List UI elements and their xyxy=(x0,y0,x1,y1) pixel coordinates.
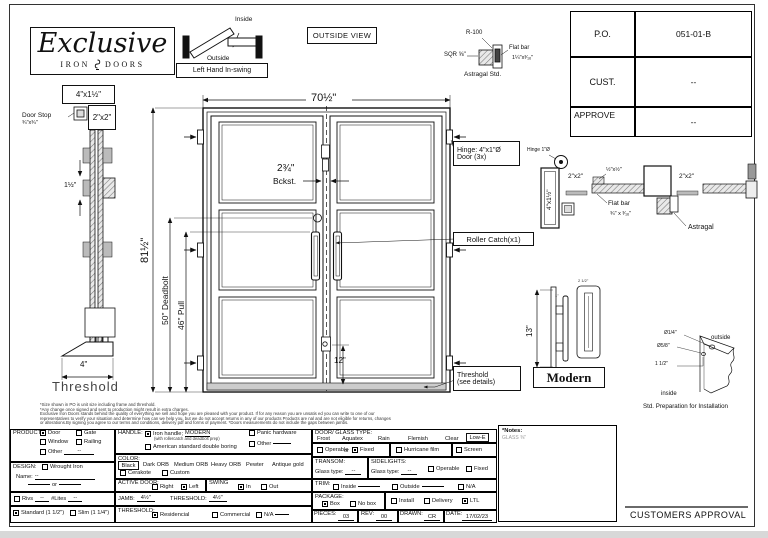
drawn-label: DRAWN: xyxy=(400,511,423,517)
checkbox-ltl: LTL xyxy=(462,498,479,504)
checkbox-cerakote: Cerakote xyxy=(120,470,151,476)
checkbox-custom-color: Custom xyxy=(162,470,190,476)
customers-approval-label: CUSTOMERS APPROVAL xyxy=(630,511,746,521)
checkbox-other-product: Other-- xyxy=(40,448,94,455)
door-stop-size: ¾"x¾" xyxy=(22,120,38,126)
checkbox-other-handle: Other xyxy=(249,441,291,447)
backset-dim: 2¾" xyxy=(277,163,294,174)
po-label: P.O. xyxy=(570,11,635,57)
threshold-width-dim: 4" xyxy=(80,361,87,370)
glass-frost: Frost xyxy=(317,436,330,442)
astragal-std-caption: Astragal Std. xyxy=(464,71,501,78)
glass-or-text: or xyxy=(344,448,349,454)
hinge-gap-dim: 1½" xyxy=(64,182,76,190)
date-value: 17/02/23 xyxy=(462,514,492,521)
checkbox-sidelight-operable: Operable xyxy=(428,466,459,472)
outside-view-label: OUTSIDE VIEW xyxy=(307,27,377,44)
threshold-row-label: THRESHOLD: xyxy=(118,508,155,514)
pull-dim: 46" Pull xyxy=(177,301,186,330)
threshold-value-field: THRESHOLD:4½" xyxy=(170,495,227,502)
checkbox-railing: Railing xyxy=(76,439,101,445)
design-label: DESIGN: xyxy=(13,464,36,470)
flatbar-label: Flat bar xyxy=(509,45,529,52)
head-astragal-label: Astragal xyxy=(688,224,714,232)
hinge-note: Hinge: 4"x1"Ø Door (3x) xyxy=(453,141,520,166)
product-label: PRODUCT: xyxy=(13,430,42,436)
roller-catch-note: Roller Catch(x1) xyxy=(453,232,534,246)
backset-label: Bckst. xyxy=(273,177,296,186)
logo-title: Exclusive xyxy=(38,30,168,57)
color-pewter: Pewter xyxy=(246,462,264,468)
approve-value: -- xyxy=(635,107,752,137)
prep-outside-label: outside xyxy=(711,335,730,342)
checkbox-wrought-iron: Wrought Iron xyxy=(42,464,83,470)
head-flatbar-size: ¾" x ³⁄₁₆" xyxy=(610,211,631,217)
checkbox-nobox: No box xyxy=(350,501,376,507)
handle-dim-width: 2 1/2" xyxy=(578,279,588,283)
hinge-note-line1: Hinge: 4"x1"Ø xyxy=(457,147,501,154)
glass-aquatex: Aquatex xyxy=(342,436,363,442)
checkbox-gate: Gate xyxy=(76,430,96,436)
sidelights-glass-field: Glass type:-- xyxy=(371,468,417,475)
checkbox-standard: Standard (1 1/2") xyxy=(13,510,64,516)
r100-label: R-100 xyxy=(466,30,482,37)
checkbox-door: Door xyxy=(40,430,60,436)
door-spec-sheet: Exclusive IRON DOORS Inside Outside Left… xyxy=(0,0,768,538)
design-or-divider: or xyxy=(28,482,81,488)
swing-label: SWING xyxy=(209,480,228,486)
checkbox-threshold-na: N/A xyxy=(256,512,289,518)
head-jamb-label: 4"x1½" xyxy=(546,189,553,210)
checkbox-trim-na: N/A xyxy=(458,484,475,490)
pieces-label: PIECES: xyxy=(314,511,336,517)
transom-glass-field: Glass type:-- xyxy=(315,468,361,475)
head-tube-left-label: 2"x2" xyxy=(568,173,583,180)
head-tube-right-label: 2"x2" xyxy=(679,173,694,180)
po-value: 051-01-B xyxy=(635,11,752,57)
prep-hole1-label: Ø1/4" xyxy=(664,331,677,337)
checkbox-in: In xyxy=(238,484,251,490)
handle-label: HANDLE: xyxy=(118,430,143,436)
corner-size-label: ½"x½" xyxy=(606,167,622,173)
package-label: PACKAGE: xyxy=(315,494,344,500)
checkbox-trim-inside: Inside xyxy=(333,484,380,490)
checkbox-fixed: Fixed xyxy=(352,447,374,453)
date-label: DATE: xyxy=(446,511,462,517)
sidelights-label: SIDELIGHTS: xyxy=(371,459,406,465)
deadbolt-dim: 50" Deadbolt xyxy=(161,276,170,325)
approve-label: APPROVE xyxy=(570,107,635,137)
logo-iron: IRON xyxy=(60,60,90,69)
color-antique-gold: Antique gold xyxy=(272,462,304,468)
flatbar-size-label: 1¼"x³⁄₁₆" xyxy=(512,55,533,61)
handle-dim-small: 1" xyxy=(555,294,559,298)
door-stop-label: Door Stop xyxy=(22,112,51,119)
jamb-size-label: 4"x1½" xyxy=(62,85,115,104)
swing-caption: Left Hand In-swing xyxy=(176,63,268,78)
jamb-value-field: JAMB:4½" xyxy=(118,495,155,502)
height-dim: 81½" xyxy=(139,238,151,263)
threshold-note: Threshold (see details) xyxy=(453,366,521,391)
color-heavy-orb: Heavy ORB xyxy=(211,462,241,468)
notes-title: *Notes: xyxy=(502,428,522,434)
rev-label: REV: xyxy=(361,511,374,517)
color-medium-orb: Medium ORB xyxy=(174,462,208,468)
checkbox-screen: Screen xyxy=(456,447,482,453)
checkbox-out: Out xyxy=(261,484,278,490)
prep-caption: Std. Preparation for Installation xyxy=(643,404,728,411)
notes-body: GLASS ⅜" xyxy=(502,436,526,442)
checkbox-american-boring: American standard double boring xyxy=(145,444,237,450)
prep-inside-label: inside xyxy=(661,391,677,398)
design-name-field: Name:-- xyxy=(16,473,95,480)
checkbox-slim: Slim (1 1/4") xyxy=(70,510,109,516)
rev-value: 00 xyxy=(376,514,392,521)
tube-size-label: 2"x2" xyxy=(88,105,116,130)
disclaimer-line5: or alterations.By signing you agree to o… xyxy=(40,421,348,426)
transom-label: TRANSOM: xyxy=(315,459,345,465)
head-flatbar-label: Flat bar xyxy=(608,200,630,207)
iron-handle-subtext: (with rollercatch and deadbolt prep) xyxy=(154,437,220,442)
swing-inside-label: Inside xyxy=(235,16,252,23)
threshold-note-line1: Threshold xyxy=(457,372,488,379)
threshold-note-line2: (see details) xyxy=(457,379,495,386)
handle-height-dim: 13" xyxy=(526,325,535,337)
checkbox-rivs: Rivs--#Lites-- xyxy=(14,495,82,502)
glass-lowe-selected: Low-E xyxy=(466,433,489,442)
logo-subtitle: IRON DOORS xyxy=(60,59,144,71)
trim-label: TRIM: xyxy=(315,481,330,487)
checkbox-window: Window xyxy=(40,439,68,445)
width-dim: 70½" xyxy=(311,92,336,104)
checkbox-right: Right xyxy=(152,484,173,490)
logo-doors: DOORS xyxy=(105,60,145,69)
checkbox-residential: Residencial xyxy=(152,512,189,518)
checkbox-install: Install xyxy=(391,498,414,504)
prep-hole2-label: Ø5/8" xyxy=(657,344,670,350)
cust-value: -- xyxy=(635,57,752,107)
glass-flemish: Flemish xyxy=(408,436,428,442)
checkbox-delivery: Delivery xyxy=(424,498,453,504)
cust-label: CUST. xyxy=(570,57,635,107)
lock-height-dim: 12" xyxy=(334,357,346,366)
glass-clear: Clear xyxy=(445,436,459,442)
prep-offset-label: 1 1/2" xyxy=(655,362,668,368)
checkbox-box: Box xyxy=(322,501,340,507)
checkbox-sidelight-fixed: Fixed xyxy=(466,466,488,472)
hinge-dia-label: Hinge 1"Ø xyxy=(527,148,550,154)
swing-outside-label: Outside xyxy=(207,55,229,62)
checkbox-left: Left xyxy=(181,484,199,490)
checkbox-hurricane: Hurricane film xyxy=(396,447,439,453)
logo-emblem-icon xyxy=(93,59,102,71)
color-black-selected: Black xyxy=(118,461,139,470)
glass-rain: Rain xyxy=(378,436,390,442)
drawn-value: CR xyxy=(424,514,440,521)
sqr-label: SQR ⅝" xyxy=(444,52,466,59)
color-dark-orb: Dark ORB xyxy=(143,462,169,468)
pieces-value: 03 xyxy=(338,514,354,521)
checkbox-trim-outside: Outside xyxy=(392,484,444,490)
handle-style-label: Modern xyxy=(533,367,605,388)
checkbox-panic: Panic hardware xyxy=(249,430,297,436)
checkbox-commercial: Commercial xyxy=(212,512,250,518)
logo: Exclusive IRON DOORS xyxy=(30,27,175,75)
hinge-note-line2: Door (3x) xyxy=(457,154,486,161)
threshold-caption: Threshold xyxy=(52,380,119,394)
